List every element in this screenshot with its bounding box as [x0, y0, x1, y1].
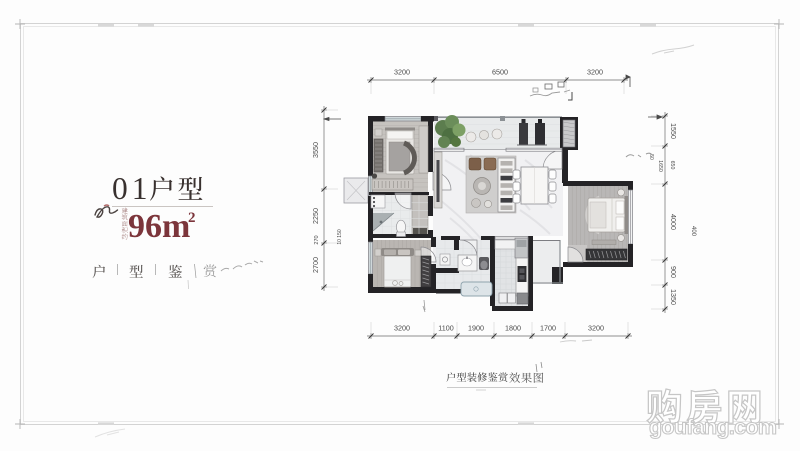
svg-text:2250: 2250 [311, 208, 320, 224]
svg-text:1650: 1650 [657, 160, 663, 172]
svg-text:01: 01 [112, 171, 152, 206]
svg-text:3550: 3550 [311, 142, 320, 158]
svg-text:1900: 1900 [468, 324, 484, 333]
svg-text:96m: 96m [128, 208, 190, 245]
svg-text:2700: 2700 [311, 257, 320, 273]
svg-text:270: 270 [314, 235, 320, 244]
svg-text:1100: 1100 [438, 324, 453, 333]
svg-text:3200: 3200 [394, 324, 410, 333]
svg-text:900: 900 [669, 266, 678, 278]
svg-text:50: 50 [648, 154, 654, 160]
svg-text:3200: 3200 [394, 68, 410, 77]
svg-text:1800: 1800 [505, 324, 521, 333]
svg-text:2: 2 [188, 210, 196, 226]
svg-text:3200: 3200 [587, 68, 603, 77]
svg-text:400: 400 [690, 226, 696, 237]
svg-text:3200: 3200 [588, 324, 604, 333]
svg-text:goufang.com: goufang.com [649, 415, 776, 439]
svg-text:6500: 6500 [492, 68, 508, 77]
svg-text:650: 650 [669, 161, 675, 170]
svg-text:4000: 4000 [669, 214, 678, 230]
svg-text:1700: 1700 [540, 324, 556, 333]
svg-text:1550: 1550 [669, 123, 678, 139]
svg-text:1350: 1350 [669, 289, 678, 305]
svg-text:10 150: 10 150 [337, 229, 343, 245]
